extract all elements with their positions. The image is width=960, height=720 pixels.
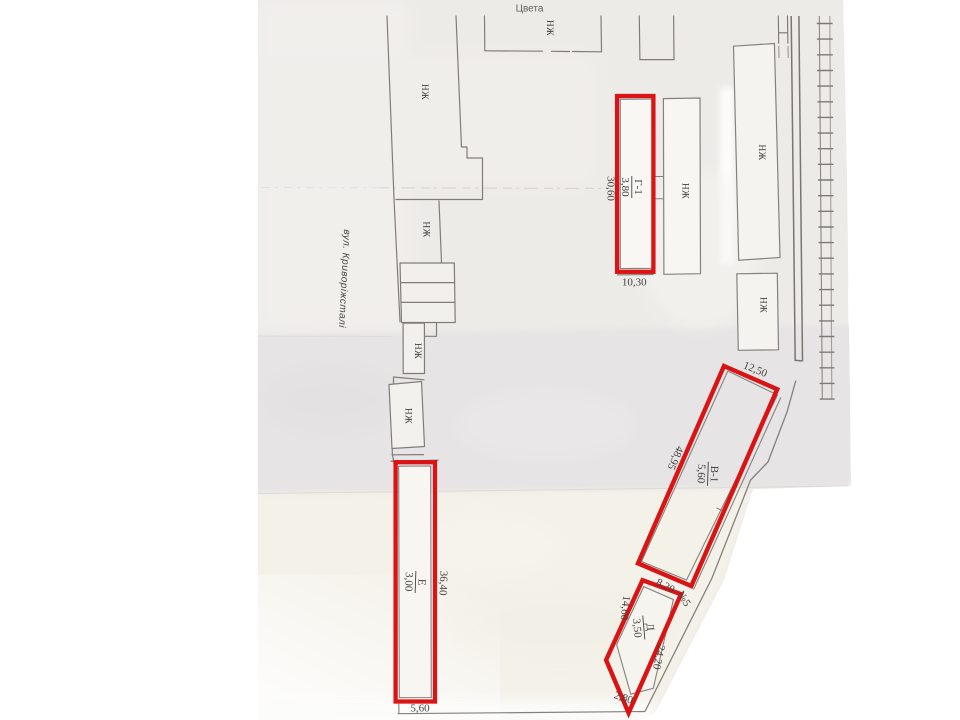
svg-text:НЖ: НЖ	[403, 408, 413, 424]
svg-text:Г-1: Г-1	[632, 179, 644, 195]
svg-text:НЖ: НЖ	[544, 20, 554, 36]
svg-text:5,60: 5,60	[695, 464, 708, 484]
svg-text:НЖ: НЖ	[756, 144, 766, 160]
svg-text:3,80: 3,80	[619, 177, 631, 197]
svg-text:НЖ: НЖ	[412, 343, 422, 359]
svg-text:3,50: 3,50	[630, 618, 644, 639]
svg-text:НЖ: НЖ	[421, 221, 431, 237]
svg-text:30,60: 30,60	[605, 176, 617, 201]
svg-text:Цвета: Цвета	[516, 4, 544, 15]
svg-text:3,00: 3,00	[402, 572, 415, 592]
svg-text:НЖ: НЖ	[419, 84, 429, 100]
svg-text:В-1: В-1	[708, 466, 721, 483]
svg-text:10,30: 10,30	[622, 277, 647, 289]
svg-text:36,40: 36,40	[437, 571, 450, 597]
svg-text:НЖ: НЖ	[680, 183, 690, 199]
svg-text:НЖ: НЖ	[758, 297, 768, 313]
svg-text:Е: Е	[415, 579, 427, 586]
svg-text:5,60: 5,60	[410, 703, 430, 715]
